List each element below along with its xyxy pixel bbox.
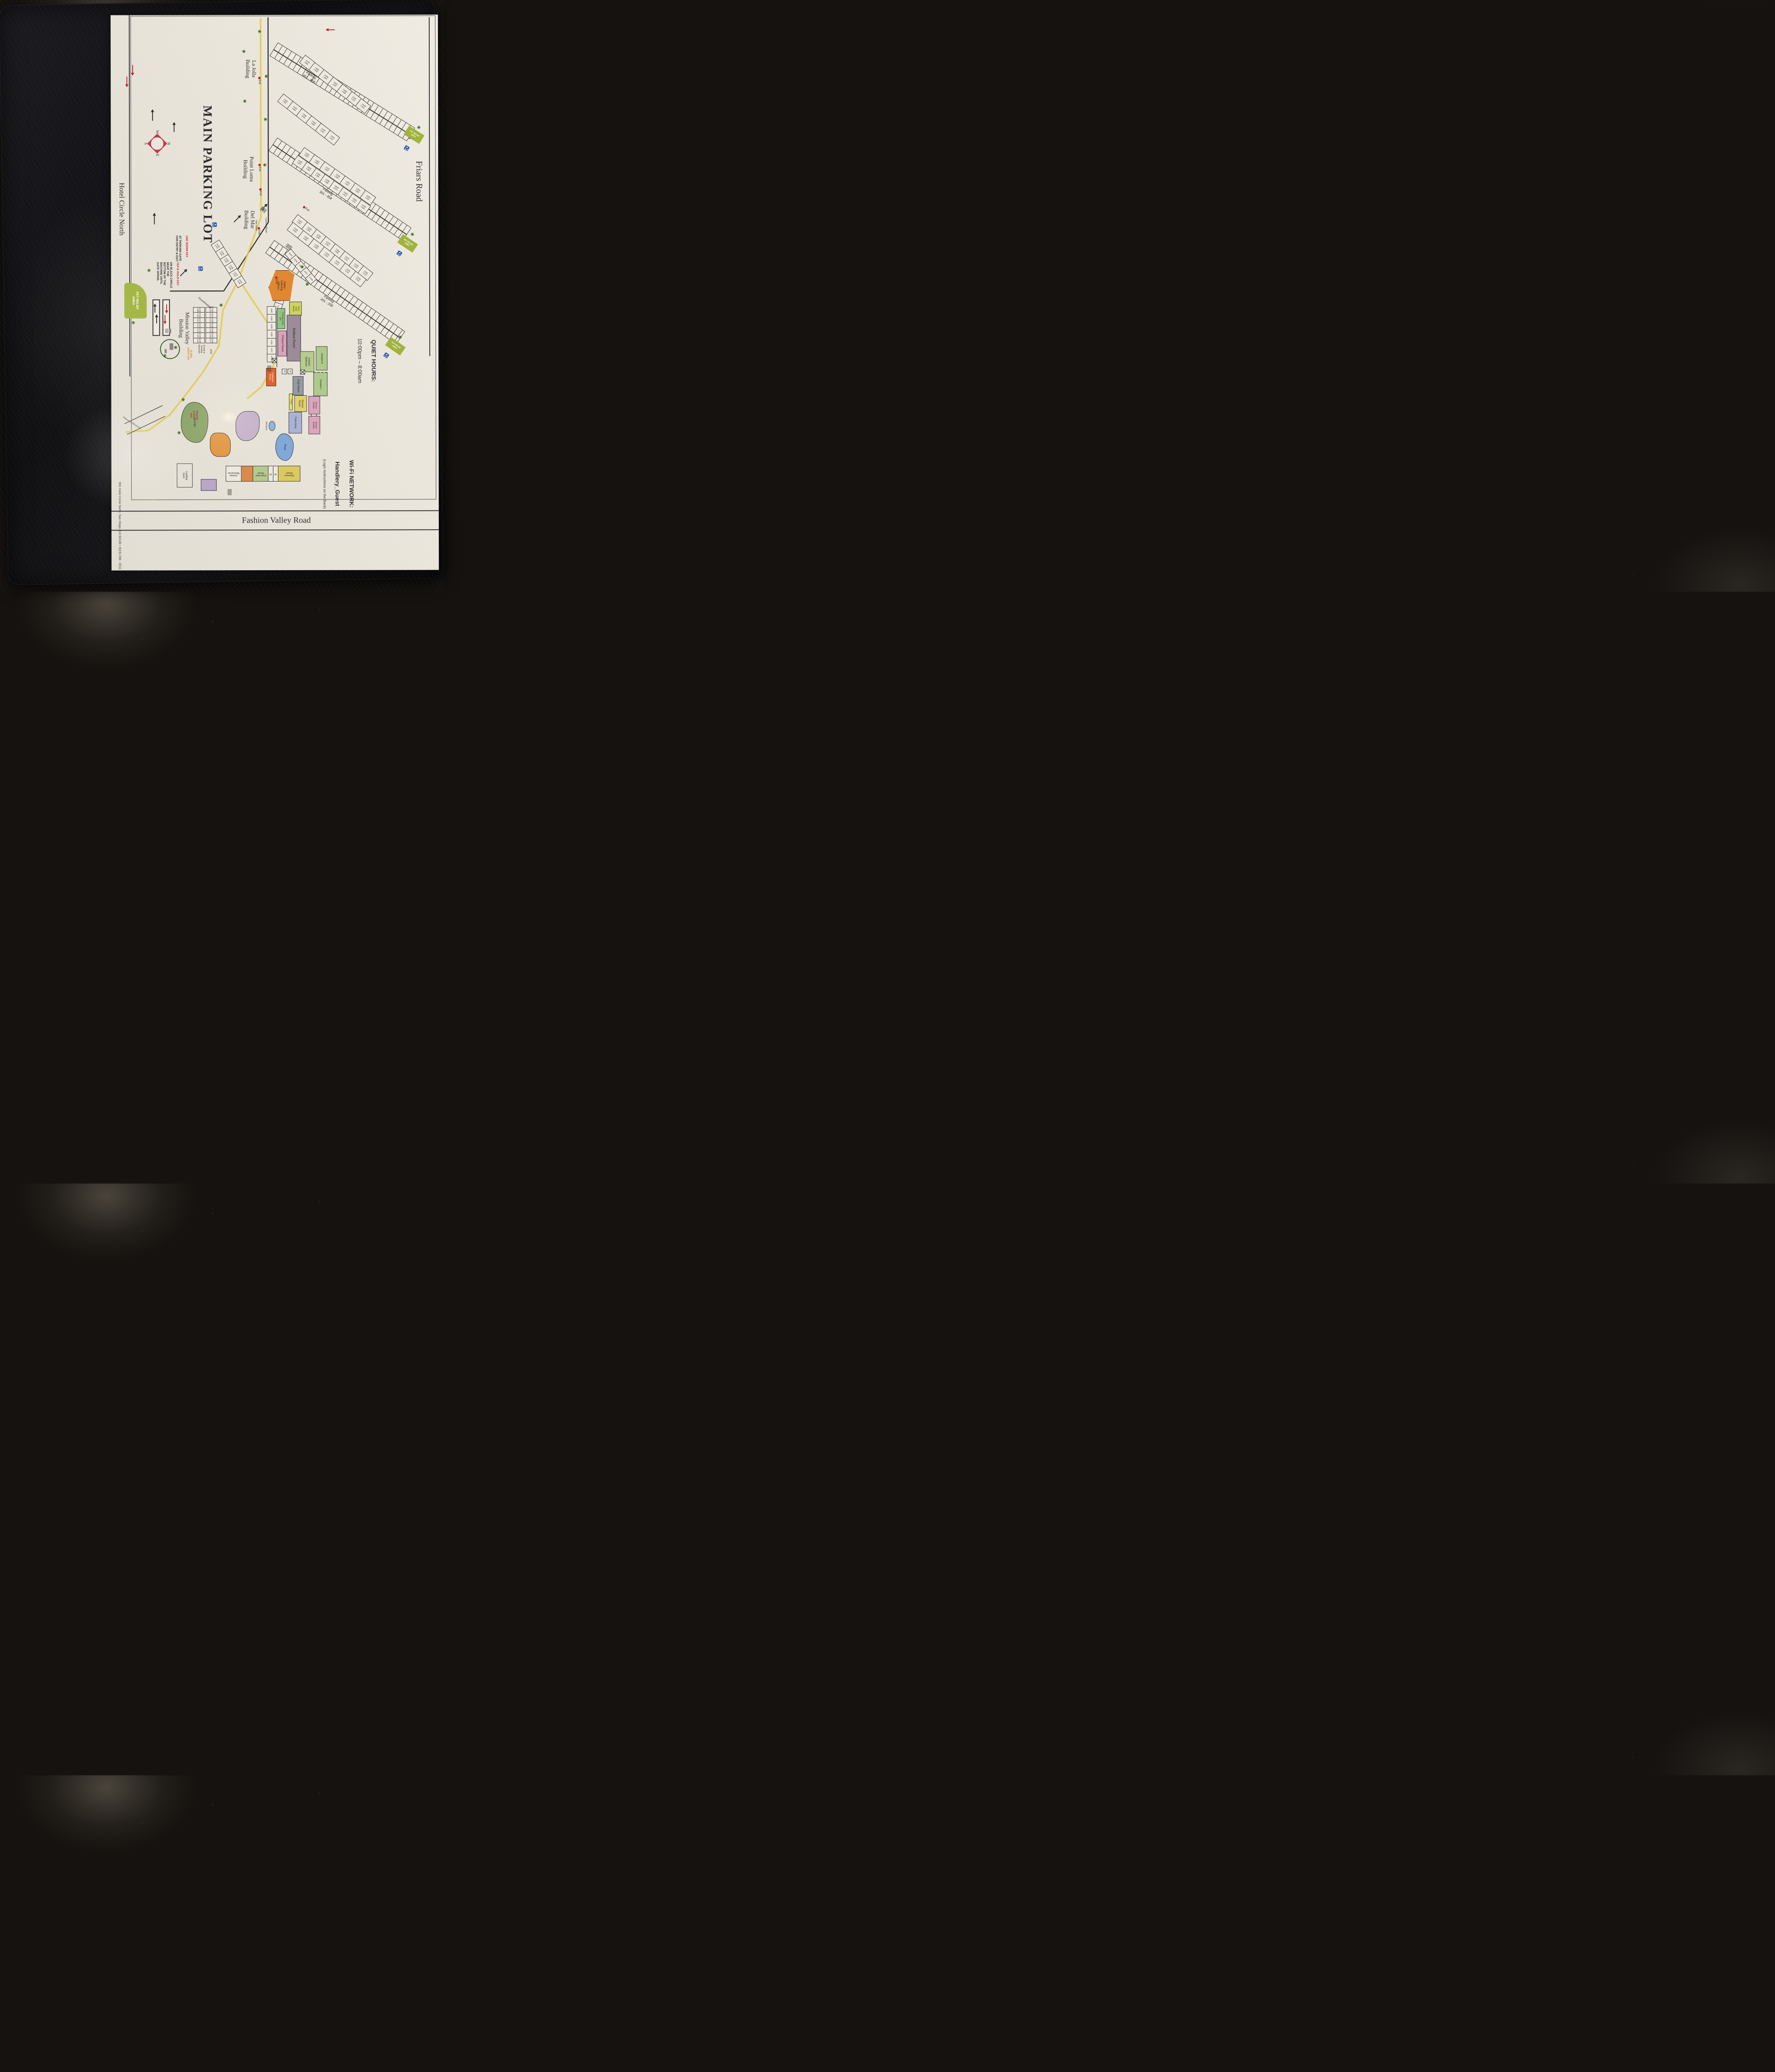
facility-room: W xyxy=(282,369,287,374)
strip-room xyxy=(241,466,253,482)
stairs-icon xyxy=(267,366,271,372)
map-label: Arcade & Vending Machines xyxy=(198,345,205,353)
palm-tree-icon: ✱ xyxy=(180,398,185,402)
palm-tree-icon: ✱ xyxy=(173,346,177,349)
facility-room: Pool View Room xyxy=(289,302,302,316)
facility-room: Foyer xyxy=(289,394,293,410)
exit-marker: Exit xyxy=(257,188,264,196)
room-cell: U165 xyxy=(267,330,276,338)
facility-room: Loading Dock xyxy=(177,463,193,487)
exit-dot-icon xyxy=(258,77,261,79)
building-name: Point Loma Building xyxy=(242,157,255,182)
exit-label: Exit xyxy=(258,80,261,84)
hotel-property-map-sheet: Friars Road Fashion Valley Road Hotel Ci… xyxy=(111,15,439,570)
building-wing: U152 L123U151 L122U150 L121U149 L120U148… xyxy=(206,307,217,343)
strip-room-label: Human Resources xyxy=(228,471,239,476)
exit-label: Exit xyxy=(258,230,261,235)
strip-room: Directors Room xyxy=(278,466,300,482)
facility-room: Patio Area xyxy=(289,412,302,433)
map-label: Laundry Room xyxy=(264,218,267,233)
facility-room xyxy=(201,479,217,491)
room-cell: U145 L116 xyxy=(193,338,205,343)
facility-room: Club Room xyxy=(293,376,303,395)
palm-tree-icon: ✱ xyxy=(146,269,150,272)
handicap-parking-icon xyxy=(212,223,217,227)
traffic-arrow-icon xyxy=(166,304,167,312)
palm-tree-icon: ✱ xyxy=(256,29,261,33)
traffic-arrow-icon xyxy=(164,315,165,323)
facility-room: Lounge xyxy=(181,402,208,443)
facility-room xyxy=(269,421,276,431)
leather-binder: Friars Road Fashion Valley Road Hotel Ci… xyxy=(0,0,444,585)
parking-gate-icon xyxy=(166,329,171,333)
map-label: ATM xyxy=(209,349,212,354)
strip-room: Executive Room xyxy=(253,466,268,482)
palm-tree-icon: ✱ xyxy=(305,282,309,286)
facility-room: Terrace Garden xyxy=(309,416,320,434)
traffic-arrow-icon xyxy=(126,77,127,87)
building-wing: U162U163U164U165U166U167U168 xyxy=(267,307,276,362)
traffic-arrow-icon xyxy=(154,213,155,224)
strip-room-label: Executive Room xyxy=(255,471,266,476)
palm-tree-icon: ✱ xyxy=(162,354,167,358)
room-cell: U162 xyxy=(267,306,276,315)
palm-tree-icon: ✱ xyxy=(264,74,268,78)
strip-room: M xyxy=(268,466,273,482)
facility-room: Balboa Room xyxy=(287,315,301,361)
stairs-icon xyxy=(228,489,232,495)
map-label: PICKUP & DROP OFF xyxy=(189,411,198,420)
building-name: La Jolla Building xyxy=(244,59,257,78)
handicap-parking-icon xyxy=(198,266,203,271)
room-cell: U146 L117 xyxy=(206,338,217,343)
strip-room: Human Resources xyxy=(226,466,242,482)
palm-tree-icon: ✱ xyxy=(262,163,266,167)
palm-tree-icon: ✱ xyxy=(218,303,223,307)
room-cell: U167 xyxy=(267,346,276,354)
building-wing: U139 L109U140 L110U141 L111U142 L112U143… xyxy=(193,307,205,343)
palm-tree-icon: ✱ xyxy=(397,335,402,339)
traffic-arrow-icon xyxy=(132,65,133,75)
facility-room: Terrace Garden xyxy=(308,396,320,414)
palm-tree-icon: ✱ xyxy=(176,431,181,435)
facility-room: Terrace Room xyxy=(294,395,307,412)
palm-tree-icon: ✱ xyxy=(299,265,304,269)
facility-room: Pool xyxy=(276,433,294,461)
palm-tree-icon: ✱ xyxy=(241,49,246,53)
strip-room-label: W xyxy=(275,472,277,475)
room-cell: U164 xyxy=(267,322,276,330)
facility-room: Fairway Suite 100 xyxy=(277,308,285,329)
strip-room-label: Directors Room xyxy=(284,471,294,476)
exit-label: Exit xyxy=(258,167,261,171)
traffic-arrow-icon xyxy=(174,123,174,132)
traffic-arrow-icon xyxy=(156,315,157,323)
exit-dot-icon xyxy=(259,188,262,191)
building-name: Mission Valley Building xyxy=(178,312,190,344)
palm-tree-icon: ✱ xyxy=(242,99,247,103)
exit-marker: Exit xyxy=(273,276,280,284)
palm-tree-icon: ✱ xyxy=(131,321,135,324)
facility-room xyxy=(210,433,231,457)
facility-room: Fitness Room xyxy=(278,331,287,356)
traffic-arrow-icon xyxy=(326,29,335,30)
palm-tree-icon: ✱ xyxy=(263,117,267,121)
exit-dot-icon xyxy=(275,276,278,279)
room-cell: U163 xyxy=(267,314,276,322)
map-label: Whirlpool xyxy=(265,422,268,431)
traffic-arrow-icon xyxy=(152,110,153,121)
palm-tree-icon: ✱ xyxy=(416,126,421,129)
facility-room: Garden I xyxy=(313,372,327,396)
exit-label: Exit xyxy=(275,279,278,284)
exit-dot-icon xyxy=(259,164,261,166)
facility-room: Garden Ballroom xyxy=(300,351,314,372)
exit-dot-icon xyxy=(258,227,260,230)
exit-label: Exit xyxy=(259,191,262,196)
elevator-icon xyxy=(300,370,305,375)
palm-tree-icon: ✱ xyxy=(409,232,414,236)
facility-room: Garden II xyxy=(316,346,327,370)
facility-room: M xyxy=(288,369,293,374)
fashion-valley-strip-building: Directors RoomWMExecutive RoomHuman Reso… xyxy=(226,466,300,482)
strip-room-label: M xyxy=(270,472,272,475)
elevator-icon xyxy=(272,358,277,363)
bell-cart-icon xyxy=(164,349,167,353)
room-cell: U166 xyxy=(267,338,276,346)
building-name: Del Mar Building xyxy=(243,210,256,229)
strip-room: W xyxy=(273,466,278,482)
map-label: 15 MIN. DROP OFF xyxy=(186,348,192,361)
traffic-arrow-icon xyxy=(155,304,155,312)
